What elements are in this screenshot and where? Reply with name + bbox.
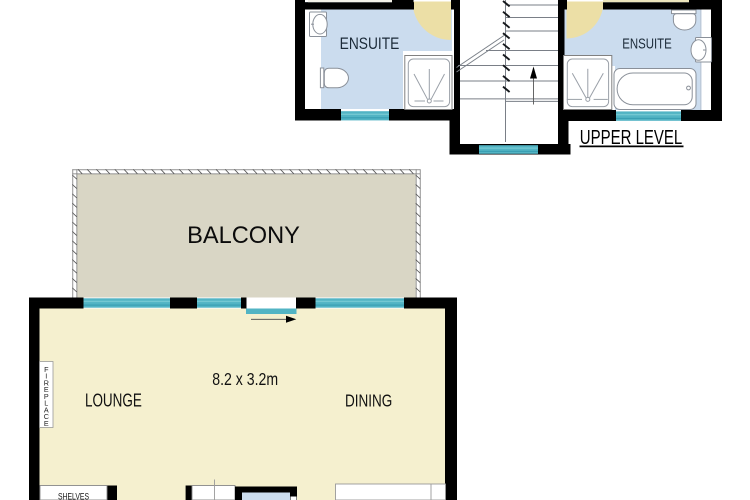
svg-text:UPPER LEVEL: UPPER LEVEL bbox=[580, 126, 683, 149]
svg-text:DINING: DINING bbox=[345, 392, 392, 411]
svg-text:ENSUITE: ENSUITE bbox=[340, 35, 400, 54]
svg-text:E: E bbox=[44, 419, 49, 428]
svg-text:ENSUITE: ENSUITE bbox=[622, 35, 672, 52]
svg-text:LOUNGE: LOUNGE bbox=[85, 392, 142, 411]
svg-text:8.2 x 3.2m: 8.2 x 3.2m bbox=[212, 371, 278, 390]
svg-text:SHELVES: SHELVES bbox=[58, 492, 89, 500]
svg-text:BALCONY: BALCONY bbox=[187, 223, 300, 249]
